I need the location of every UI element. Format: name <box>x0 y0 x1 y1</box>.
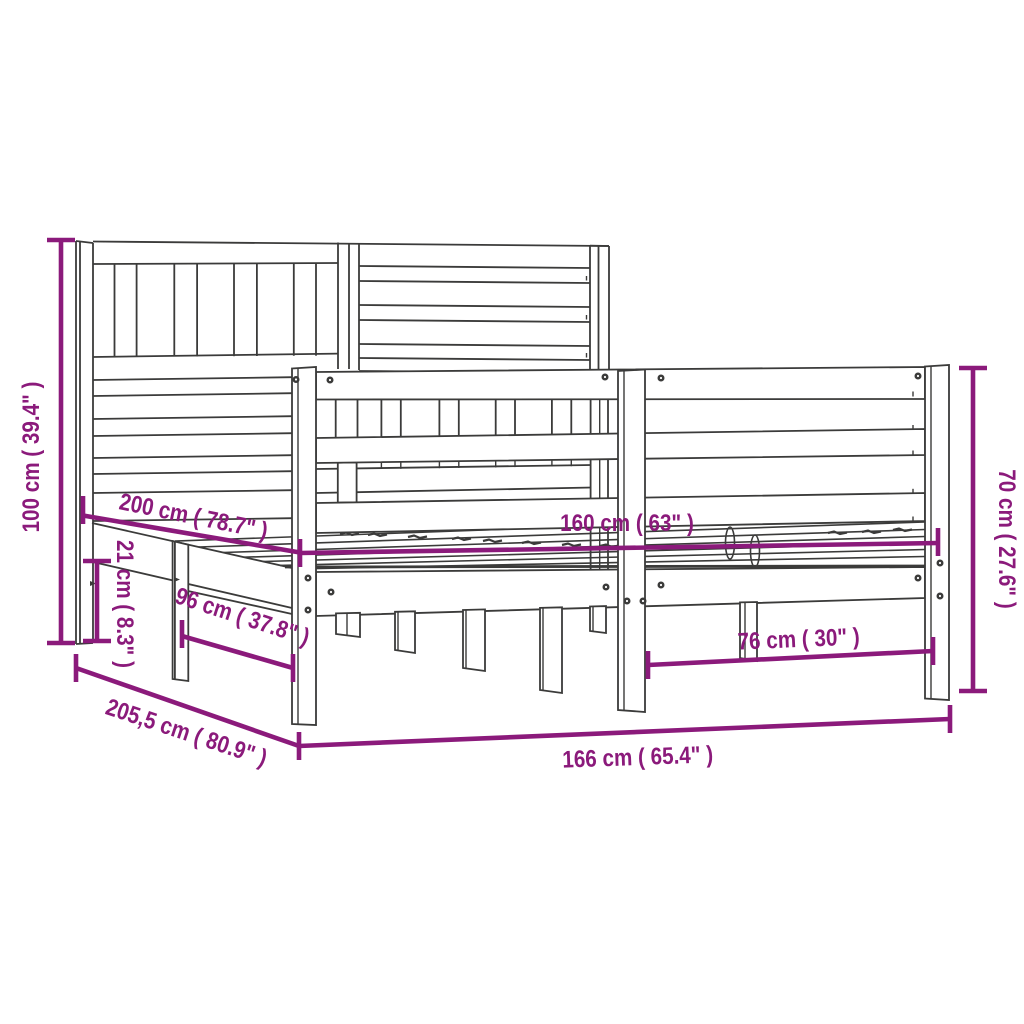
svg-text:21 cm ( 8.3" ): 21 cm ( 8.3" ) <box>112 540 139 668</box>
svg-text:166 cm ( 65.4" ): 166 cm ( 65.4" ) <box>562 741 714 773</box>
svg-text:76 cm ( 30" ): 76 cm ( 30" ) <box>737 623 860 655</box>
svg-text:160 cm ( 63" ): 160 cm ( 63" ) <box>560 510 694 537</box>
svg-text:70 cm ( 27.6" ): 70 cm ( 27.6" ) <box>994 469 1021 608</box>
svg-text:100 cm ( 39.4" ): 100 cm ( 39.4" ) <box>18 382 45 533</box>
